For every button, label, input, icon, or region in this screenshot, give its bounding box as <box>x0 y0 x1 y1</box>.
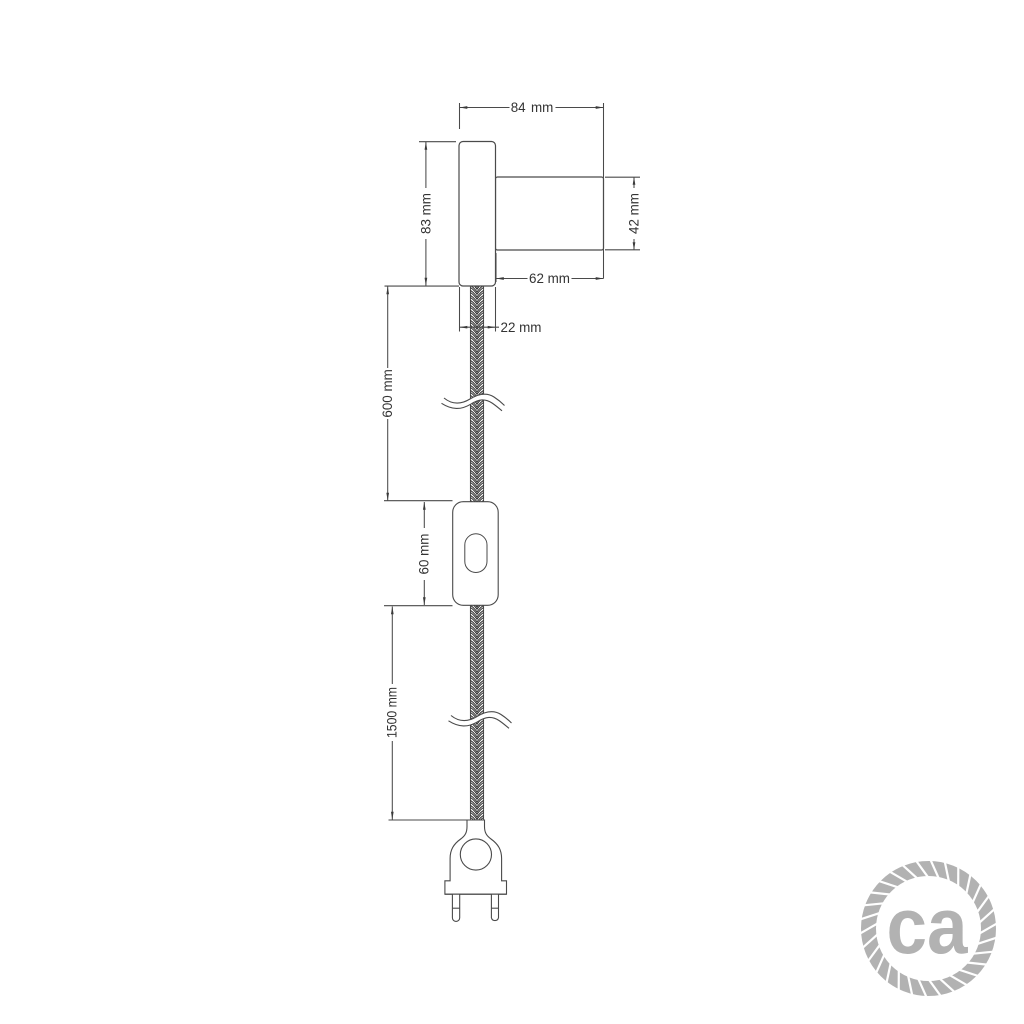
svg-text:60 mm: 60 mm <box>417 534 432 575</box>
svg-text:42 mm: 42 mm <box>626 193 641 234</box>
svg-text:84 mm: 84 mm <box>511 100 554 115</box>
svg-text:62 mm: 62 mm <box>529 271 570 286</box>
svg-text:22 mm: 22 mm <box>501 320 542 335</box>
svg-text:83 mm: 83 mm <box>418 193 433 234</box>
svg-text:ca: ca <box>887 881 969 970</box>
svg-text:1500 mm: 1500 mm <box>385 687 400 738</box>
svg-text:600 mm: 600 mm <box>380 369 395 417</box>
